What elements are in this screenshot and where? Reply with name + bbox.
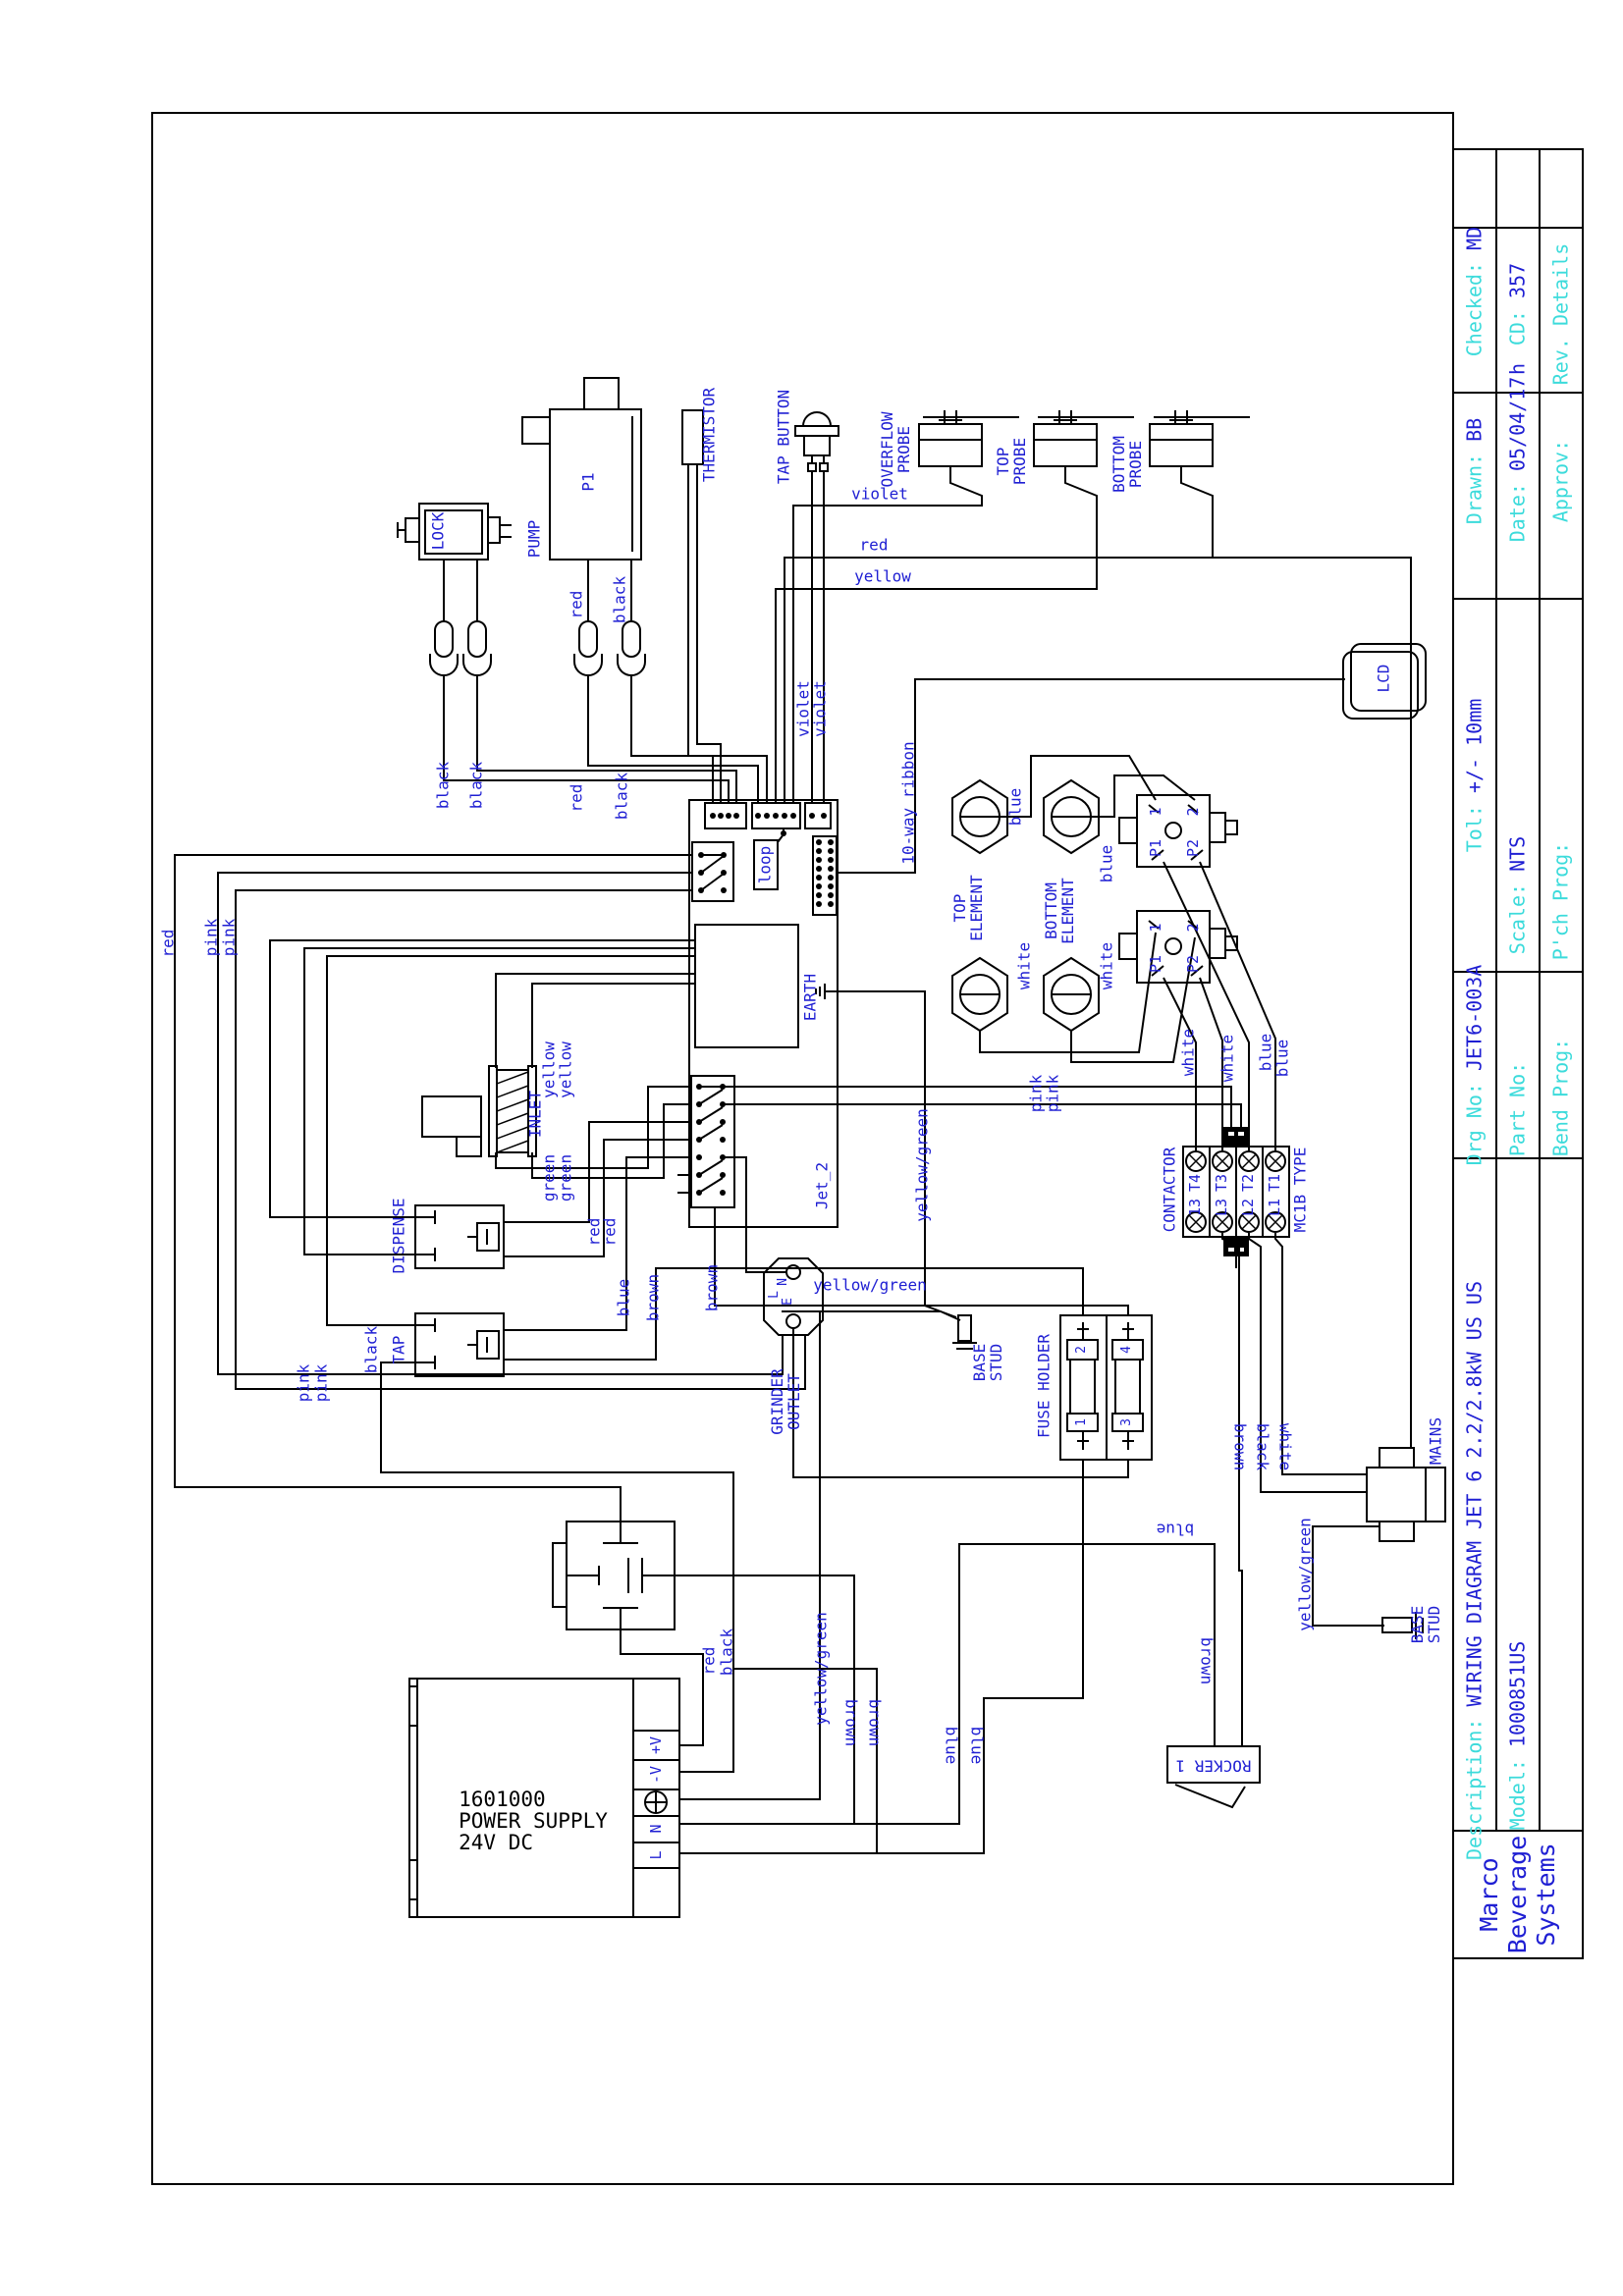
contactor-term-l1: L1 xyxy=(1268,1199,1283,1216)
wire-label-black: black xyxy=(364,1326,381,1373)
wire-label-black: black xyxy=(615,773,631,820)
date-label: Date: xyxy=(1506,471,1530,542)
wire-label-brown: brown xyxy=(866,1699,883,1746)
overflow-probe-label: OVERFLOW PROBE xyxy=(880,411,913,487)
ps-term-n: N xyxy=(649,1824,665,1833)
tap-button-label: TAP BUTTON xyxy=(777,390,793,484)
titleblock-model: Model: 1000851US xyxy=(1508,1641,1529,1831)
description-value: WIRING DIAGRAM JET 6 2.2/2.8kW US US xyxy=(1463,1281,1487,1706)
contactor-type-label: MC1B TYPE xyxy=(1293,1148,1310,1233)
tol-label: Tol: xyxy=(1463,793,1487,852)
wire-label-blue: blue xyxy=(1008,788,1025,827)
contactor-term-l2: L2 xyxy=(1241,1199,1257,1216)
wire-label-blue: blue xyxy=(968,1727,985,1765)
base-stud-label: BASE STUD xyxy=(1410,1606,1443,1644)
wire-label-pink: pink xyxy=(204,919,221,957)
wiring-diagram-canvas xyxy=(0,0,1623,2296)
wire-label-white: white xyxy=(1181,1029,1198,1076)
drawn-value: BB xyxy=(1463,418,1487,442)
titleblock-checked: Checked: MD xyxy=(1465,227,1486,356)
wire-label-brown: brown xyxy=(1198,1637,1215,1684)
company-name: Marco Beverage Systems xyxy=(1476,1836,1560,1953)
date-value: 05/04/17 xyxy=(1506,377,1530,471)
fuse-term-1: 1 xyxy=(1075,1418,1089,1426)
wire-label-black: black xyxy=(436,762,453,809)
titleblock-drawn: Drawn: BB xyxy=(1465,418,1486,524)
wire-label-brown: brown xyxy=(646,1274,663,1321)
cutout1-term-p1: P1 xyxy=(1149,839,1164,857)
wire-label-blue: blue xyxy=(943,1727,959,1765)
tol-value: +/- 10mm xyxy=(1463,699,1487,793)
grinder-term-e: E xyxy=(782,1298,795,1306)
contactor-label: CONTACTOR xyxy=(1163,1148,1179,1233)
wire-label-red: red xyxy=(702,1647,719,1676)
wire-label-blue: blue xyxy=(1100,845,1116,883)
wire-label-violet: violet xyxy=(813,680,830,737)
ps-term-l: L xyxy=(649,1850,665,1859)
wire-label-yellow: yellow xyxy=(854,569,911,586)
pump-label: PUMP xyxy=(527,520,544,559)
wire-label-yellow-green: yellow/green xyxy=(813,1278,927,1295)
jet2-label: Jet_2 xyxy=(815,1162,832,1209)
earth-label: EARTH xyxy=(803,974,820,1021)
lock-label: LOCK xyxy=(431,512,448,551)
drawing-border xyxy=(152,113,1583,2184)
checked-label: Checked: xyxy=(1463,250,1487,356)
wire-label-yellow-green: yellow/green xyxy=(814,1612,831,1726)
wire-label-brown: brown xyxy=(705,1264,722,1311)
titleblock-part-no: Part No: xyxy=(1508,1062,1529,1156)
fuse-term-3: 3 xyxy=(1120,1418,1134,1426)
wire-label-yellow-green: yellow/green xyxy=(1298,1518,1315,1631)
wire-label-pink: pink xyxy=(314,1364,331,1403)
titleblock-pch-prog: P'ch Prog: xyxy=(1551,842,1572,960)
wire-label-white: white xyxy=(1100,942,1116,989)
top-probe-label: TOP PROBE xyxy=(996,438,1029,485)
wire-label-black: black xyxy=(1254,1423,1271,1470)
drawn-label: Drawn: xyxy=(1463,442,1487,524)
base-stud-label: BASE STUD xyxy=(972,1344,1005,1382)
model-value: 1000851US xyxy=(1506,1641,1530,1747)
ribbon-label: 10-way ribbon xyxy=(901,741,918,864)
cd-value: 357 xyxy=(1506,263,1530,298)
wire-label-red: red xyxy=(569,591,586,619)
wire-label-pink: pink xyxy=(222,919,239,957)
top-element-label: TOP ELEMENT xyxy=(952,875,986,940)
titleblock-drg-no: Drg No: JET6-003A xyxy=(1465,965,1486,1166)
cutout2-term-p1: P1 xyxy=(1149,955,1164,973)
wire-label-green: green xyxy=(559,1154,575,1201)
wire-label-red: red xyxy=(161,930,178,958)
bottom-probe-label: BOTTOM PROBE xyxy=(1111,436,1145,493)
grinder-outlet-label: GRINDER OUTLET xyxy=(770,1368,803,1434)
wire-label-pink: pink xyxy=(1046,1075,1062,1113)
wire-label-white: white xyxy=(1276,1423,1293,1470)
titleblock-bend-prog: Bend Prog: xyxy=(1551,1039,1572,1156)
wire-label-yellow: yellow xyxy=(559,1041,575,1098)
cutout1-term-p2: P2 xyxy=(1186,839,1202,857)
titleblock-approv: Approv: xyxy=(1551,440,1572,522)
wire-label-black: black xyxy=(720,1629,736,1676)
cutout2-term-1: 1 xyxy=(1149,923,1164,932)
wire-label-red: red xyxy=(569,784,586,813)
scale-value: NTS xyxy=(1506,836,1530,872)
wire-label-white: white xyxy=(1017,942,1034,989)
model-label: Model: xyxy=(1506,1747,1530,1830)
dispense-label: DISPENSE xyxy=(392,1198,408,1273)
cutout1-term-1: 1 xyxy=(1149,807,1164,816)
scale-label: Scale: xyxy=(1506,872,1530,954)
contactor-term-t3: T3 xyxy=(1215,1174,1230,1192)
wire-label-red: red xyxy=(860,538,889,555)
ps-term-nv: -V xyxy=(649,1766,665,1784)
grinder-term-l: L xyxy=(768,1291,782,1299)
titleblock-rev-details: Rev. Details xyxy=(1551,243,1572,386)
wire-label-brown: brown xyxy=(842,1699,859,1746)
tap-label: TAP xyxy=(392,1336,408,1364)
wire-label-blue: blue xyxy=(1275,1040,1292,1078)
drg-no-label: Drg No: xyxy=(1463,1071,1487,1165)
contactor-term-t4: T4 xyxy=(1188,1174,1204,1192)
cutout1-term-2: 2 xyxy=(1186,807,1202,816)
contactor-term-t1: T1 xyxy=(1268,1174,1283,1192)
wire-label-black: black xyxy=(613,576,629,623)
wire-label-violet: violet xyxy=(851,487,908,504)
wiring-diagram-page: LOCK PUMP P1 black black red black red b… xyxy=(0,0,1623,2296)
cd-label: CD: xyxy=(1506,298,1530,346)
lcd-label: LCD xyxy=(1377,665,1393,693)
wire-label-white: white xyxy=(1220,1035,1237,1082)
pump-id-label: P1 xyxy=(581,472,598,491)
wire-label-red: red xyxy=(603,1218,620,1247)
fuse-term-4: 4 xyxy=(1120,1346,1134,1354)
titleblock-scale: Scale: NTS xyxy=(1508,836,1529,954)
bottom-element-label: BOTTOM ELEMENT xyxy=(1044,878,1077,943)
wire-label-blue: blue xyxy=(1157,1521,1195,1537)
titleblock-cd: CD: 357 xyxy=(1508,263,1529,346)
wire-label-brown: brown xyxy=(1231,1423,1248,1470)
thermistor-label: THERMISTOR xyxy=(702,388,719,482)
grinder-term-n: N xyxy=(777,1278,790,1286)
contactor-term-t2: T2 xyxy=(1241,1174,1257,1192)
cutout2-term-2: 2 xyxy=(1186,923,1202,932)
power-supply-text: 1601000 POWER SUPPLY 24V DC xyxy=(459,1789,608,1853)
titleblock-date-suffix: h xyxy=(1508,363,1529,375)
titleblock-tol: Tol: +/- 10mm xyxy=(1465,699,1486,853)
loop-label: loop xyxy=(758,846,775,884)
inlet-label: INLET xyxy=(528,1091,545,1138)
contactor-term-l3: L3 xyxy=(1215,1199,1230,1216)
wire-label-pink: pink xyxy=(297,1364,313,1403)
ps-term-pv: +V xyxy=(649,1736,665,1754)
titleblock-description: Description: WIRING DIAGRAM JET 6 2.2/2.… xyxy=(1465,1281,1486,1860)
rocker-label: ROCKER 1 xyxy=(1175,1757,1251,1774)
wire-label-blue: blue xyxy=(617,1279,633,1317)
drg-no-value: JET6-003A xyxy=(1463,965,1487,1071)
wire-label-black: black xyxy=(469,762,486,809)
cutout2-term-p2: P2 xyxy=(1186,955,1202,973)
mains-label: MAINS xyxy=(1429,1417,1445,1465)
fuse-term-2: 2 xyxy=(1075,1346,1089,1354)
checked-value: MD xyxy=(1463,227,1487,250)
contactor-term-13: 13 xyxy=(1188,1199,1204,1216)
fuse-holder-label: FUSE HOLDER xyxy=(1037,1334,1054,1438)
wire-label-yellow-green: yellow/green xyxy=(915,1108,932,1222)
titleblock-date: Date: 05/04/17 xyxy=(1508,377,1529,543)
